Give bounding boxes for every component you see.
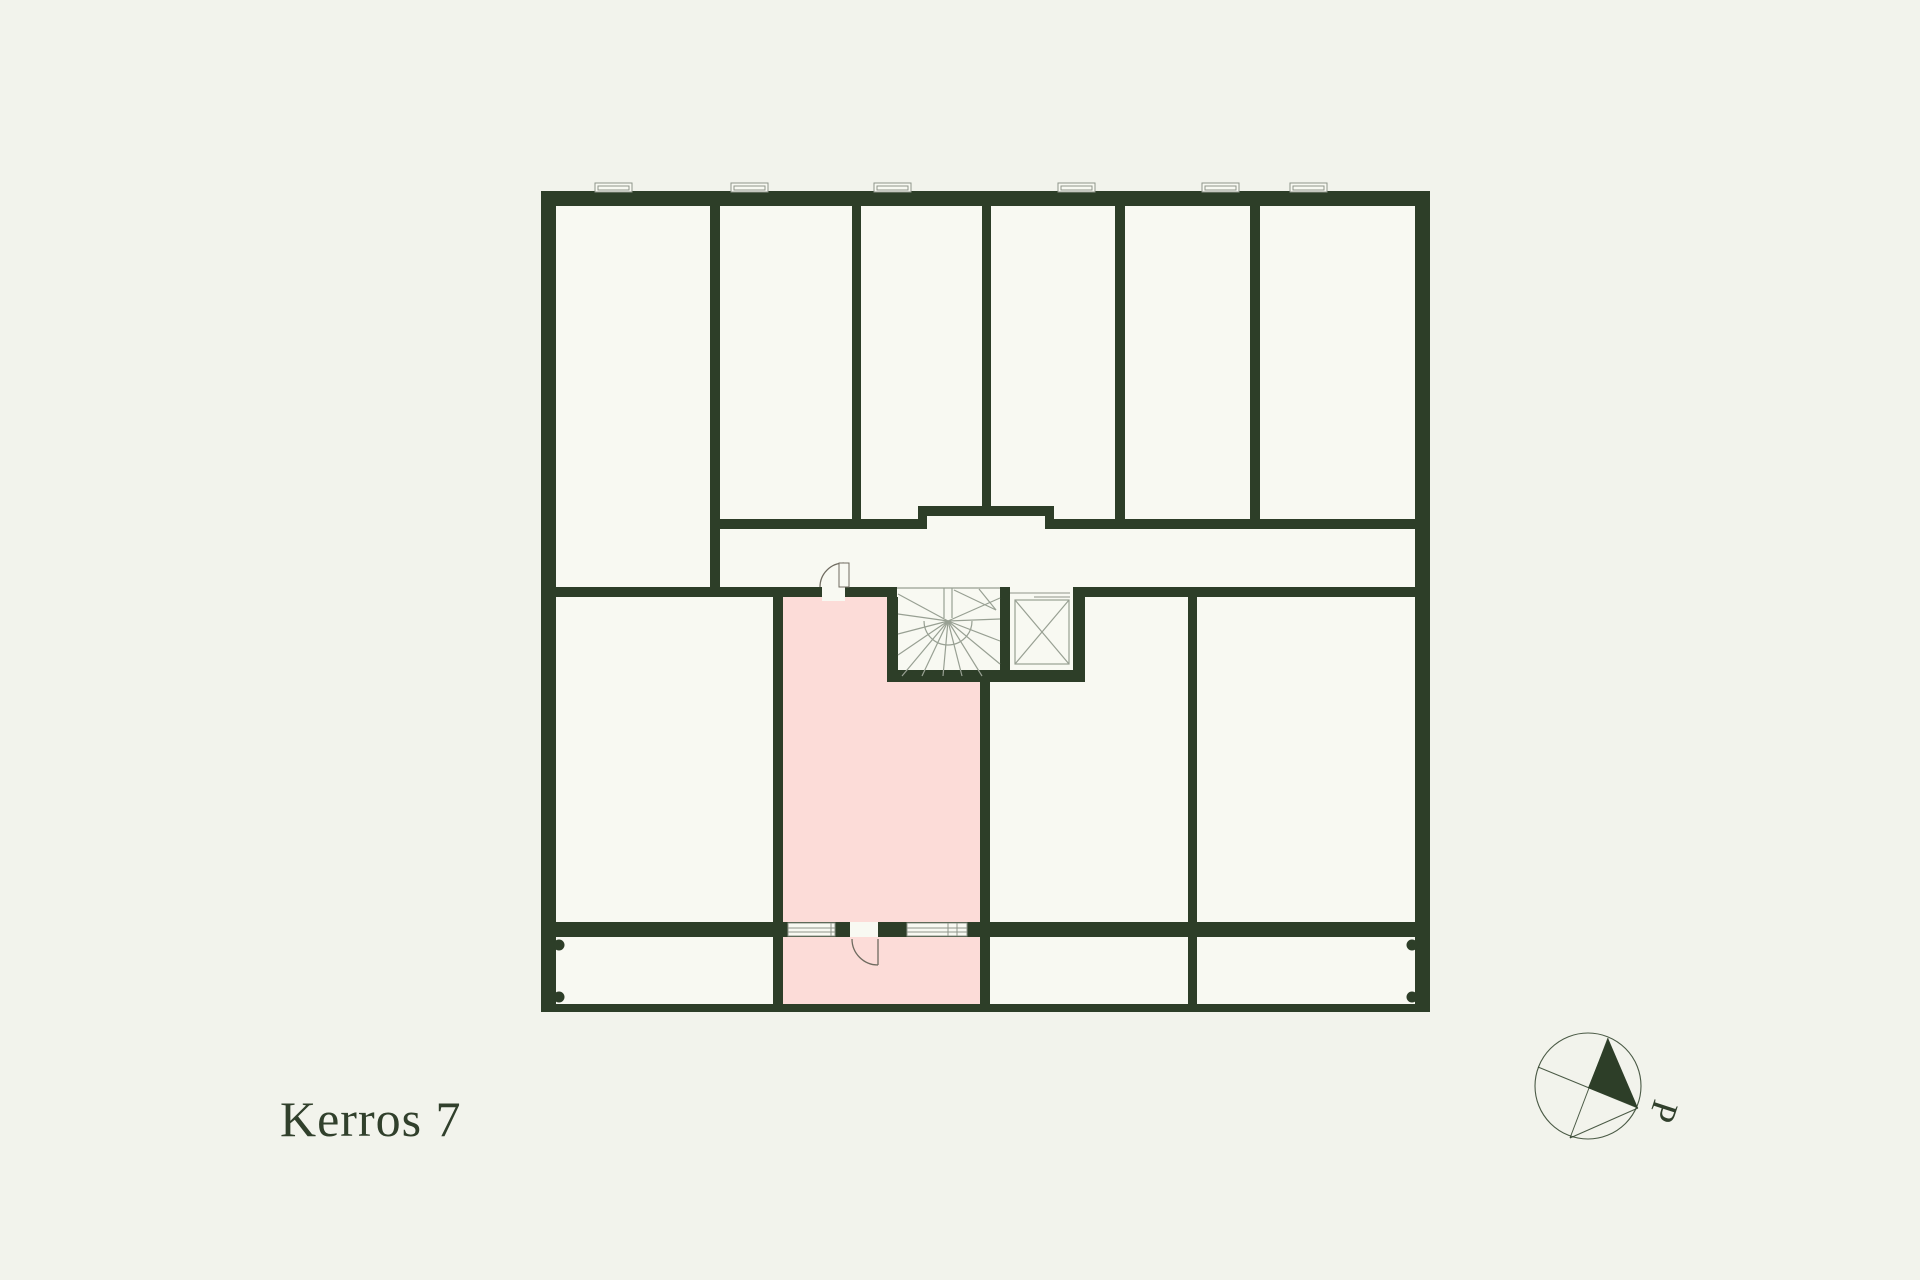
balcony-door-opening xyxy=(850,922,878,937)
wall-segment xyxy=(982,204,991,516)
facade-windows-top xyxy=(595,183,1327,192)
wall-segment xyxy=(1415,191,1430,1012)
window-symbol xyxy=(907,923,967,936)
wall-segment xyxy=(710,204,720,597)
window-symbol xyxy=(595,183,632,192)
window-symbol xyxy=(874,183,911,192)
wall-segment xyxy=(852,204,861,529)
wall-segment xyxy=(1115,204,1125,529)
wall-segment xyxy=(1073,587,1430,597)
window-symbol xyxy=(788,923,835,936)
wall-segment xyxy=(541,191,556,1012)
wall-segment xyxy=(541,191,1430,206)
floor-plan-page: P Kerros 7 xyxy=(0,0,1920,1280)
wall-segment xyxy=(1073,587,1085,682)
floor-plan-canvas: P xyxy=(0,0,1920,1280)
window-symbol xyxy=(1202,183,1239,192)
wall-segment xyxy=(1000,597,1010,682)
wall-segment xyxy=(1188,597,1197,1012)
column-dot xyxy=(554,940,565,951)
north-needle xyxy=(1588,1038,1638,1108)
window-symbol xyxy=(731,183,768,192)
wall-segment xyxy=(980,680,990,1012)
wall-segment xyxy=(773,597,783,1012)
wall-segment xyxy=(541,587,822,597)
wall-segment xyxy=(845,587,897,597)
wall-segment xyxy=(1250,204,1260,529)
compass: P xyxy=(1535,1033,1685,1139)
column-dot xyxy=(1407,992,1418,1003)
north-label: P xyxy=(1640,1095,1685,1127)
wall-segment xyxy=(720,519,927,529)
floor-title: Kerros 7 xyxy=(280,1094,462,1144)
wall-segment xyxy=(1045,519,1415,529)
wall-segment xyxy=(887,597,898,682)
wall-segment xyxy=(918,506,927,529)
column-dot xyxy=(554,992,565,1003)
window-symbol xyxy=(1058,183,1095,192)
column-dot xyxy=(1407,940,1418,951)
unit-entry-opening xyxy=(822,587,845,601)
window-symbol xyxy=(1290,183,1327,192)
wall-segment xyxy=(1000,587,1010,597)
highlighted-unit-balcony-area[interactable] xyxy=(783,937,980,1005)
